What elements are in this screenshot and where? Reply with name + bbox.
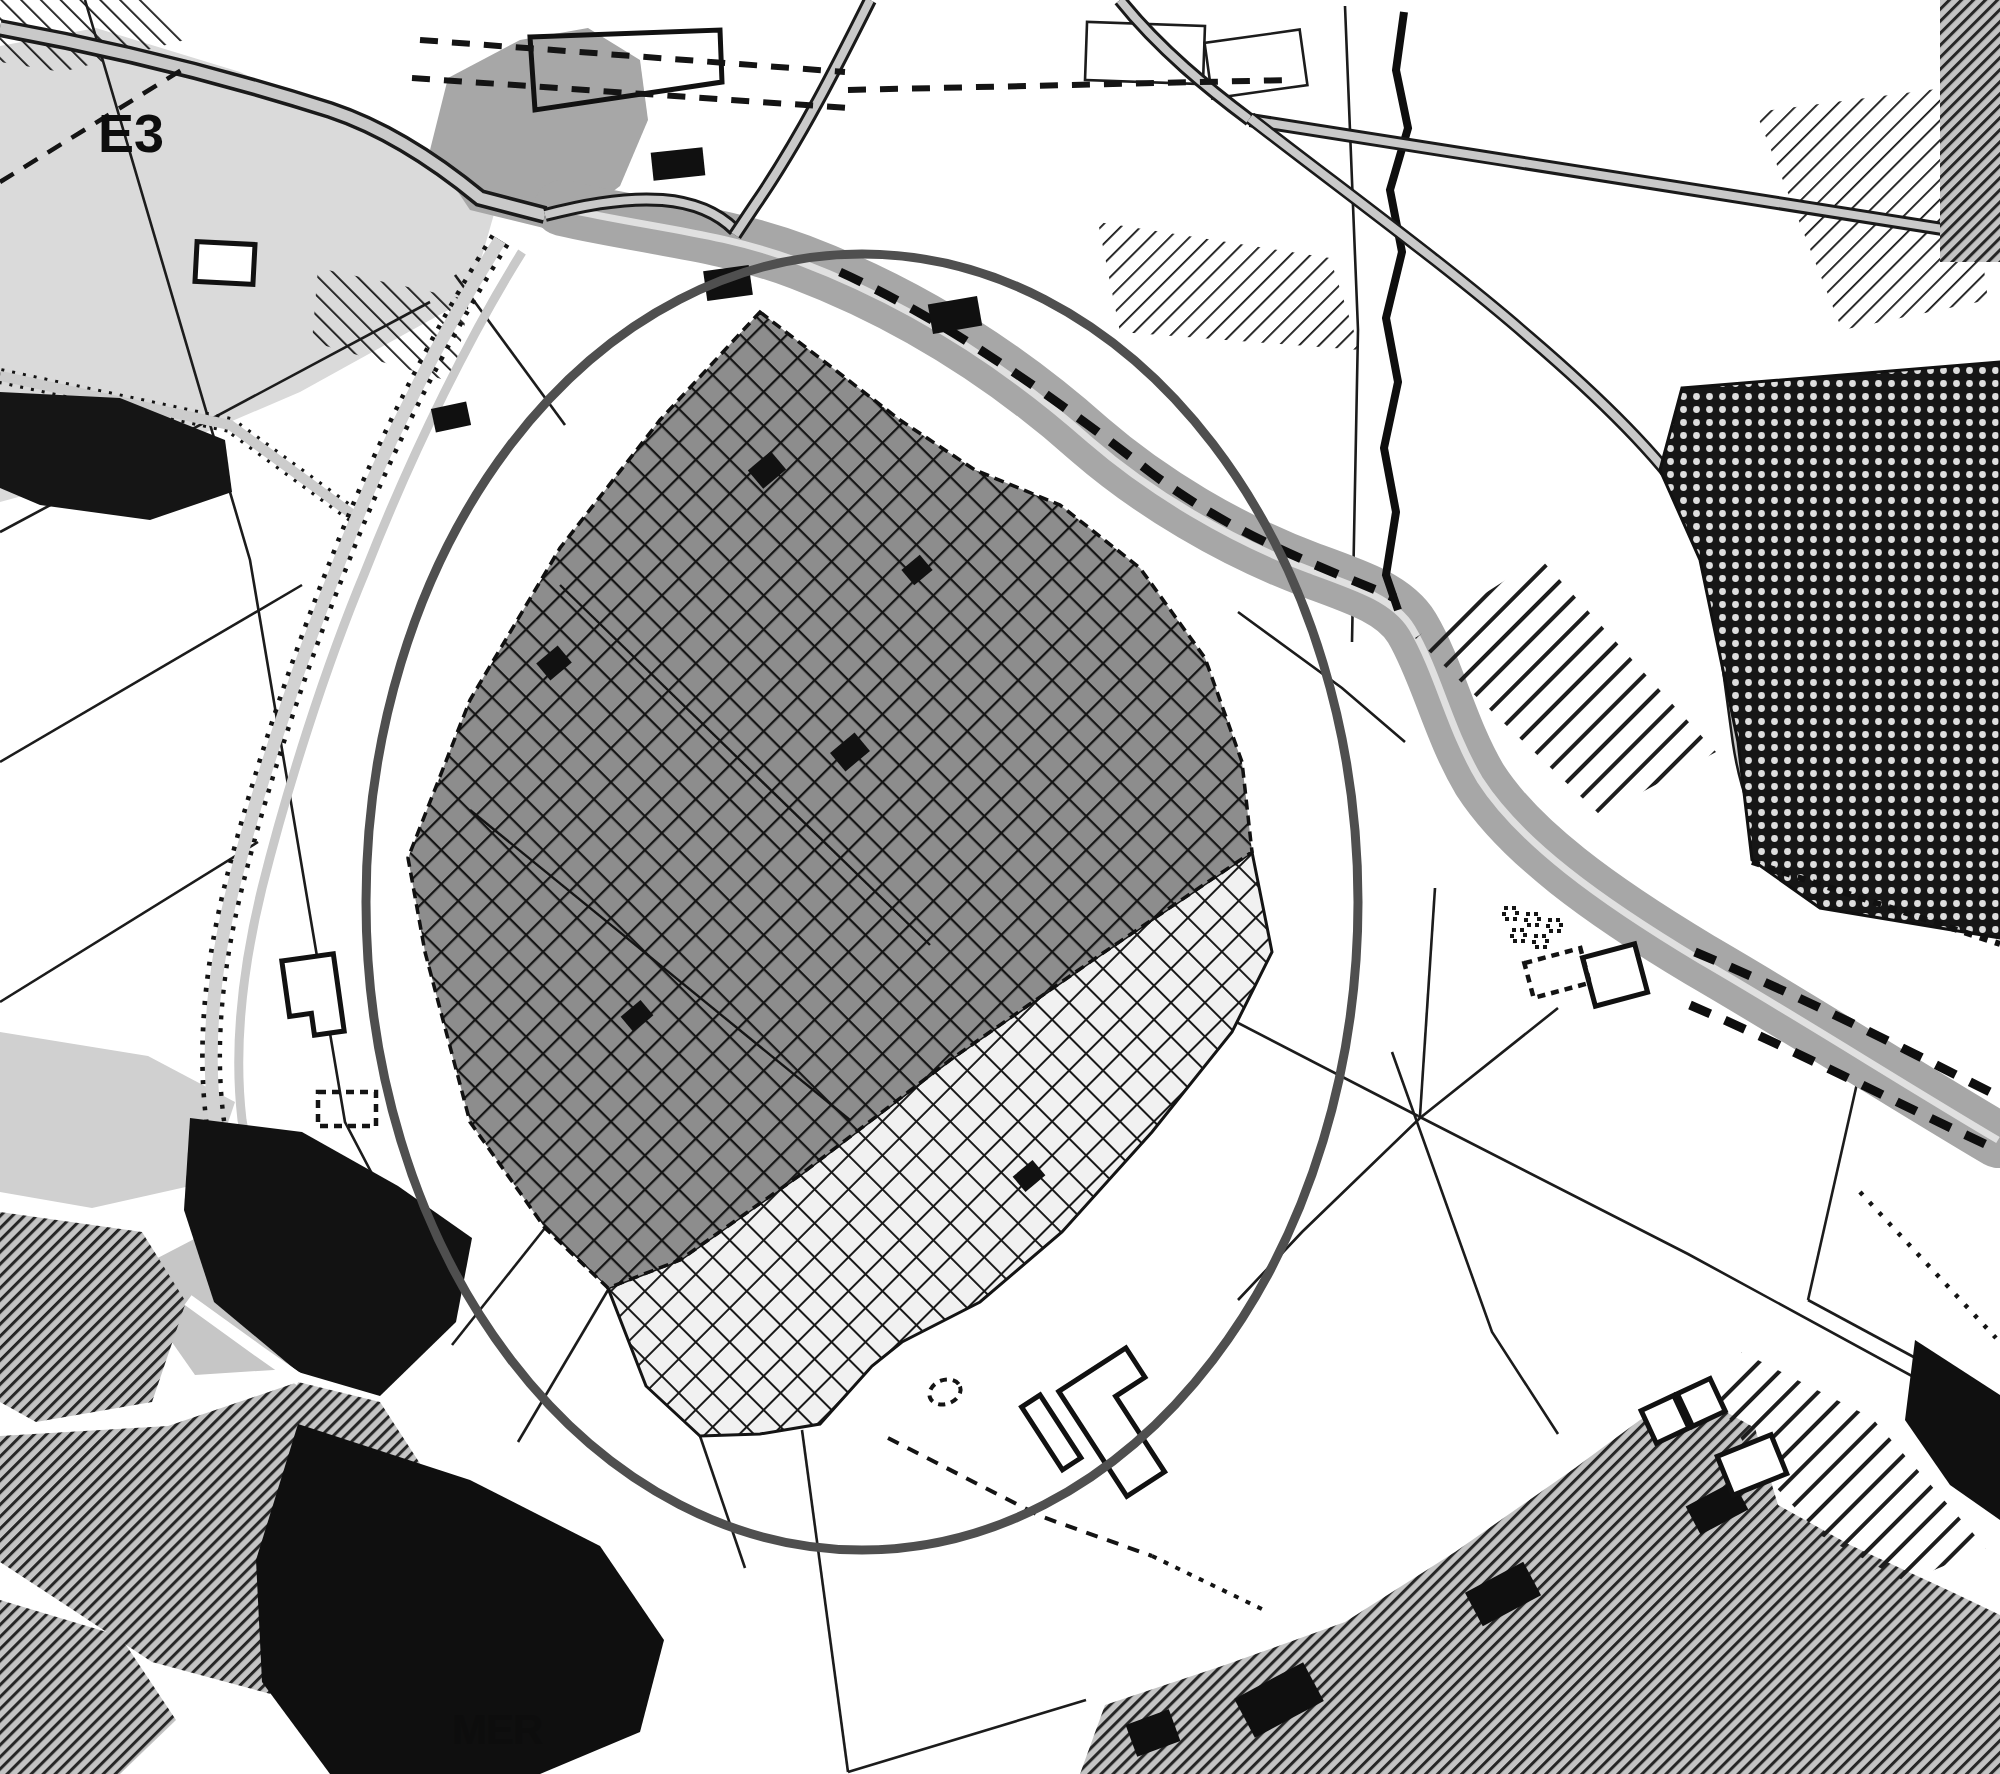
scanned-zoning-map: E3 MER: [0, 0, 2000, 1774]
building-top-left: [195, 242, 255, 285]
label-zone-mer: MER: [452, 1706, 543, 1753]
right-edge-strip: [1940, 0, 2000, 262]
map-canvas: E3 MER: [0, 0, 2000, 1774]
label-zone-e3: E3: [98, 103, 164, 163]
building-east-solid: [1582, 944, 1647, 1006]
